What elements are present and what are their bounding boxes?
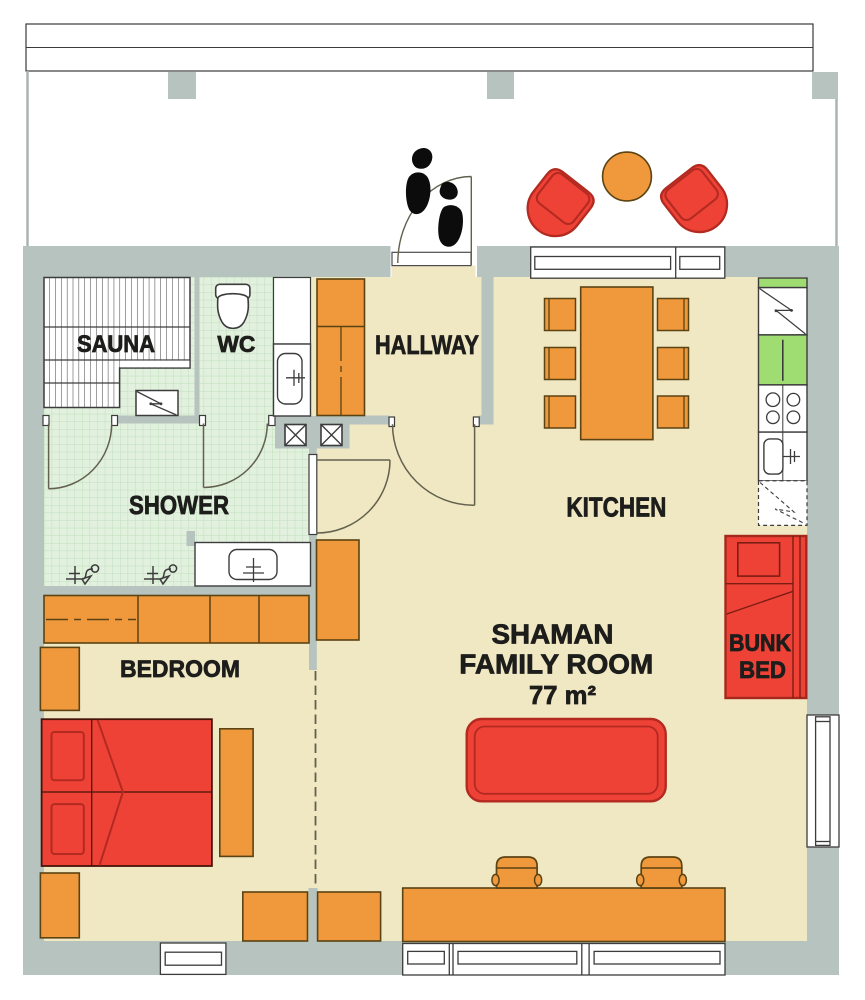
svg-text:FAMILY ROOM: FAMILY ROOM [459, 649, 653, 680]
svg-text:SAUNA: SAUNA [77, 331, 155, 358]
svg-text:SHOWER: SHOWER [129, 490, 229, 520]
svg-text:HALLWAY: HALLWAY [375, 330, 479, 360]
svg-text:WC: WC [217, 331, 255, 357]
svg-text:BUNK: BUNK [729, 630, 792, 657]
svg-text:SHAMAN: SHAMAN [492, 619, 614, 650]
svg-text:77 m²: 77 m² [529, 680, 596, 710]
svg-text:BEDROOM: BEDROOM [120, 656, 240, 683]
svg-text:BED: BED [739, 657, 786, 684]
svg-text:KITCHEN: KITCHEN [566, 492, 666, 523]
